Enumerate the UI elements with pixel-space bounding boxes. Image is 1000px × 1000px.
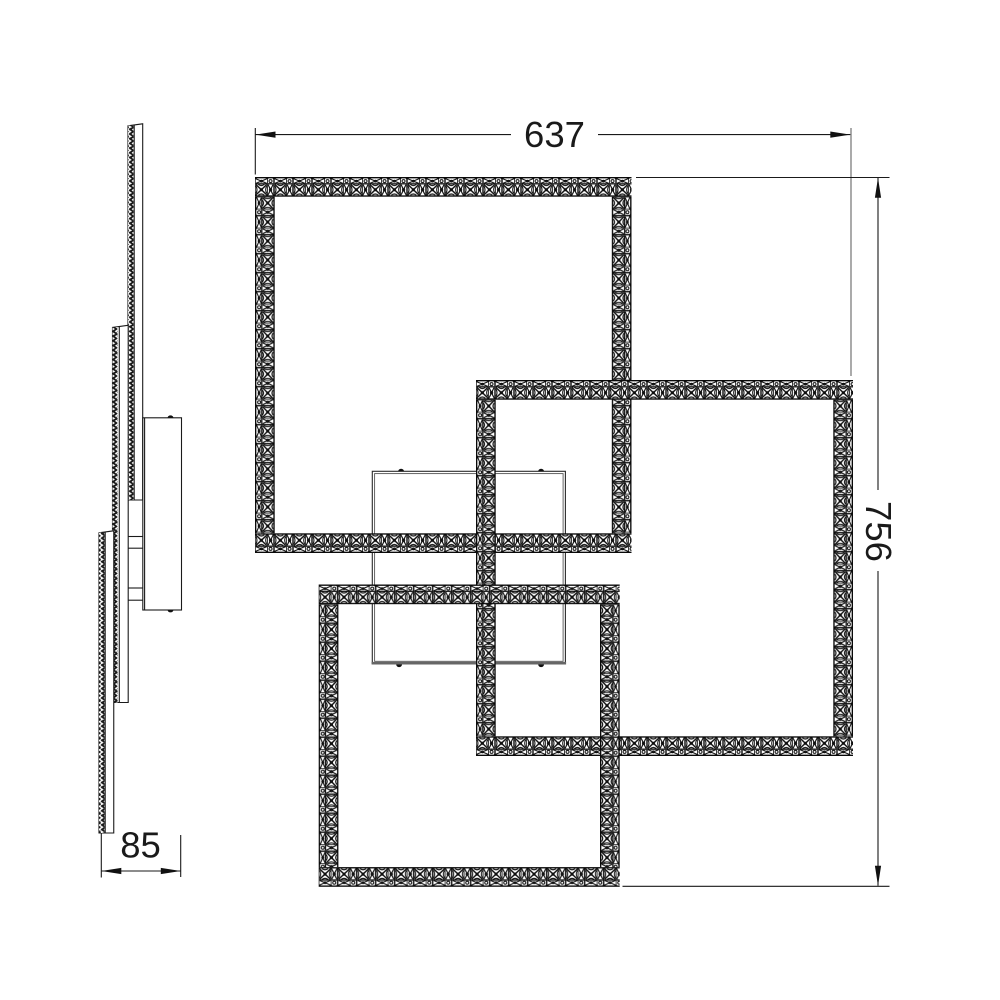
svg-text:85: 85 (120, 824, 161, 865)
svg-text:756: 756 (858, 501, 899, 562)
svg-text:637: 637 (524, 114, 585, 155)
